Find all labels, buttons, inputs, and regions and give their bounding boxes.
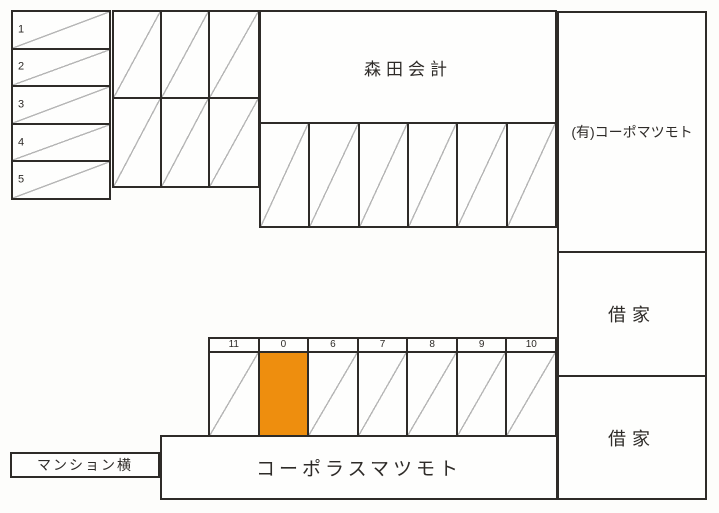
stall-number: 10 bbox=[507, 339, 555, 351]
parking-stall-0-highlighted bbox=[260, 353, 310, 435]
stall-number: 6 bbox=[309, 339, 359, 351]
parking-stall-5: 5 bbox=[13, 162, 109, 198]
building-label: 借家 bbox=[608, 301, 656, 327]
building-label: コーポラスマツモト bbox=[256, 454, 462, 481]
parking-stall bbox=[114, 12, 162, 99]
stall-number: 5 bbox=[18, 175, 24, 186]
bottom-parking-row: 11 0 6 7 8 9 10 bbox=[208, 337, 557, 437]
shakuya-lower-building: 借家 bbox=[559, 377, 705, 498]
parking-stall bbox=[310, 124, 359, 226]
parking-stall-10 bbox=[507, 353, 555, 435]
parking-stall-8 bbox=[408, 353, 458, 435]
stall-number: 4 bbox=[18, 137, 24, 148]
parking-stall bbox=[360, 124, 409, 226]
parking-stall bbox=[508, 124, 555, 226]
building-label: 借家 bbox=[608, 425, 656, 451]
parking-stall bbox=[458, 124, 507, 226]
morita-kaikei-building: 森田会計 bbox=[259, 10, 557, 124]
stall-number: 11 bbox=[210, 339, 260, 351]
stall-number: 2 bbox=[18, 62, 24, 73]
corpo-matsumoto-building: (有)コーポマツモト bbox=[559, 13, 705, 253]
parking-stall bbox=[409, 124, 458, 226]
parking-stall-1: 1 bbox=[13, 12, 109, 50]
parking-stall bbox=[114, 99, 162, 186]
stall-number: 8 bbox=[408, 339, 458, 351]
stall-number: 7 bbox=[359, 339, 409, 351]
parking-stall-2: 2 bbox=[13, 50, 109, 88]
parking-stall-7 bbox=[359, 353, 409, 435]
stall-number: 9 bbox=[458, 339, 508, 351]
building-label: (有)コーポマツモト bbox=[571, 122, 692, 142]
shakuya-upper-building: 借家 bbox=[559, 253, 705, 377]
parking-stall bbox=[162, 12, 210, 99]
corporas-matsumoto-building: コーポラスマツモト bbox=[160, 435, 558, 500]
parking-stall bbox=[261, 124, 310, 226]
parking-stall bbox=[210, 99, 258, 186]
bottom-row-number-strip: 11 0 6 7 8 9 10 bbox=[210, 339, 555, 353]
left-parking-column: 1 2 3 4 5 bbox=[11, 10, 111, 200]
parking-stall-9 bbox=[458, 353, 508, 435]
stall-number: 0 bbox=[260, 339, 310, 351]
parking-stall-3: 3 bbox=[13, 87, 109, 125]
parking-stall bbox=[210, 12, 258, 99]
upper-parking-grid bbox=[112, 10, 260, 188]
right-buildings-column: (有)コーポマツモト 借家 借家 bbox=[557, 11, 707, 500]
parking-stall-11 bbox=[210, 353, 260, 435]
stall-number: 1 bbox=[18, 24, 24, 35]
stall-number: 3 bbox=[18, 99, 24, 110]
mansion-yoko-label-box: マンション横 bbox=[10, 452, 160, 478]
parking-site-map: 1 2 3 4 5 森田会計 ( bbox=[0, 0, 719, 513]
bottom-row-stalls bbox=[210, 353, 555, 435]
parking-stall-6 bbox=[309, 353, 359, 435]
area-label: マンション横 bbox=[37, 455, 133, 475]
parking-stall bbox=[162, 99, 210, 186]
middle-parking-row bbox=[259, 122, 557, 228]
building-label: 森田会計 bbox=[364, 55, 452, 80]
parking-stall-4: 4 bbox=[13, 125, 109, 163]
